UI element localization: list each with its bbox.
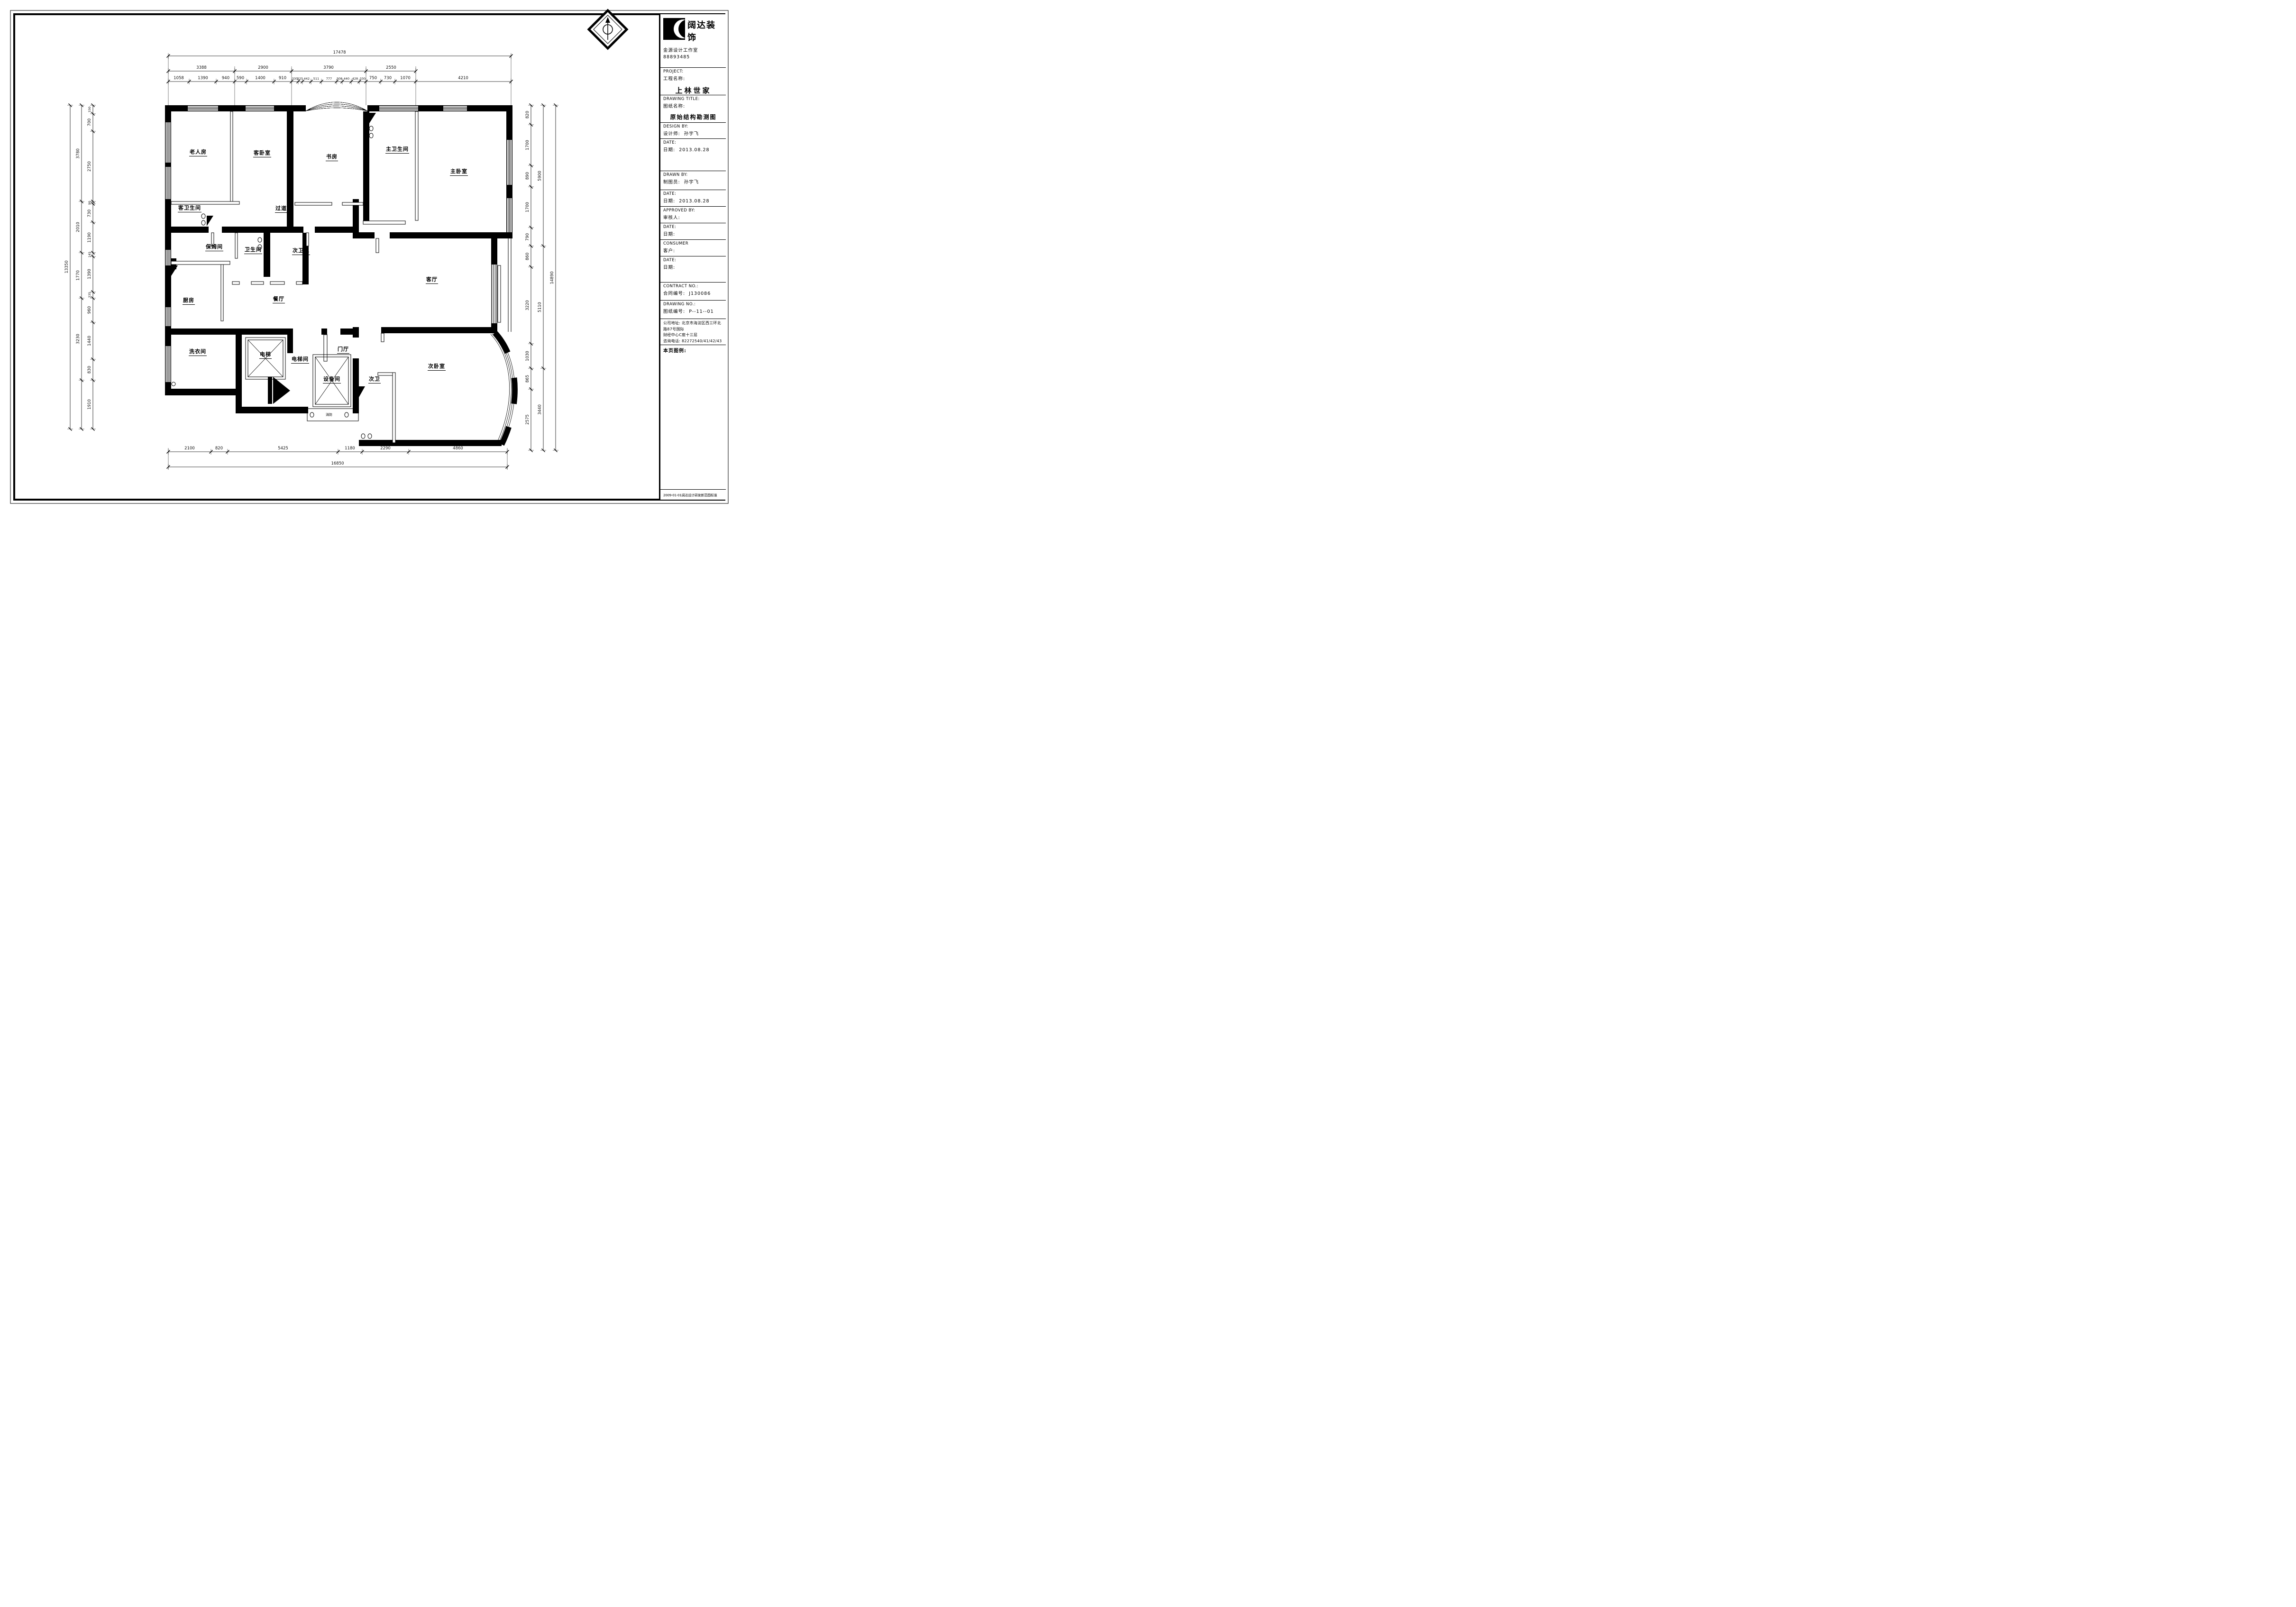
- titleblock-section-legend: 本页图例:: [660, 345, 726, 489]
- date3-label-cn: 日期:: [663, 232, 675, 237]
- approved-by-label-cn: 审核人:: [663, 215, 680, 220]
- walls: [165, 105, 512, 446]
- bay-window: [491, 333, 515, 445]
- contract-number: J130086: [689, 291, 711, 296]
- drawing-number: P--11--01: [689, 309, 713, 314]
- drawn-by-label-en: DRAWN BY:: [663, 173, 723, 177]
- titleblock-section-date4: DATE: 日期:: [660, 256, 726, 282]
- consumer-label-en: CONSUMER: [663, 241, 723, 246]
- drawing-title: 原始结构勘测图: [663, 113, 723, 121]
- date1-label-cn: 日期:: [663, 147, 675, 153]
- drawing-no-label-en: DRAWING NO.:: [663, 302, 723, 307]
- floor-plan-drawing: [0, 0, 733, 513]
- equipment-room-symbol: [313, 355, 351, 407]
- titleblock-section-consumer: CONSUMER 客户:: [660, 239, 726, 256]
- elevator-symbol: [246, 338, 285, 379]
- titleblock-section-contract: CONTRACT NO.: 合同编号:J130086: [660, 282, 726, 300]
- titleblock-section-approved-by: APPROVED BY: 审核人:: [660, 206, 726, 223]
- titleblock-section-date1: DATE: 日期:2013.08.28: [660, 138, 726, 171]
- studio-phone: 88893485: [663, 54, 723, 61]
- date4-label-en: DATE:: [663, 258, 723, 263]
- date2-value: 2013.08.28: [679, 199, 709, 204]
- drawing-no-label-cn: 图纸编号:: [663, 309, 685, 314]
- date1-value: 2013.08.28: [679, 147, 709, 153]
- dimension-lines: [67, 53, 558, 470]
- consumer-label-cn: 客户:: [663, 248, 675, 254]
- drawn-by-label-cn: 制图员:: [663, 180, 680, 185]
- titleblock-section-drawing-title: DRAWING TITLE: 图纸名称: 原始结构勘测图: [660, 95, 726, 122]
- project-name: 上林世家: [663, 85, 723, 95]
- entry-arrow-icon: [268, 377, 290, 404]
- drawing-sheet: 老人房客卧室书房主卫生间主卧室客卫生间过道保姆间卫生间次卫二厨房餐厅客厅洗衣间电…: [0, 0, 733, 513]
- titleblock-section-design-by: DESIGN BY: 设计师:孙宇飞: [660, 122, 726, 138]
- titleblock-logo: 阔达装饰 KUODA DECORRTION: [660, 14, 726, 46]
- title-block: 阔达装饰 KUODA DECORRTION 金源设计工作室 88893485 P…: [659, 14, 726, 500]
- drawing-title-label-cn: 图纸名称:: [663, 102, 723, 109]
- company-phone: 咨询电话: 82272540/41/42/43: [663, 338, 723, 345]
- footer-note: 2009-01-01阔达设计研发新范图标准: [663, 491, 723, 498]
- drafter-name: 孙宇飞: [684, 180, 699, 185]
- windows: [165, 102, 512, 383]
- titleblock-section-company: 公司地址: 北京市海淀区西三环北路87号国际 财经中心C座十三层 咨询电话: 8…: [660, 319, 726, 345]
- titleblock-section-drawn-by: DRAWN BY: 制图员:孙宇飞: [660, 171, 726, 190]
- designer-name: 孙宇飞: [684, 131, 699, 137]
- project-label-cn: 工程名称:: [663, 75, 723, 82]
- date4-label-cn: 日期:: [663, 265, 675, 270]
- titleblock-section-drawing-no: DRAWING NO.: 图纸编号:P--11--01: [660, 300, 726, 319]
- brand-name: 阔达装饰: [687, 18, 723, 43]
- design-by-label-en: DESIGN BY:: [663, 124, 723, 129]
- date1-label-en: DATE:: [663, 140, 723, 145]
- date3-label-en: DATE:: [663, 225, 723, 229]
- studio-name: 金源设计工作室: [663, 47, 723, 54]
- date2-label-en: DATE:: [663, 192, 723, 196]
- design-by-label-cn: 设计师:: [663, 131, 680, 137]
- titleblock-section-date3: DATE: 日期:: [660, 223, 726, 239]
- approved-by-label-en: APPROVED BY:: [663, 208, 723, 213]
- compass-icon: [589, 10, 627, 48]
- titleblock-footer: 2009-01-01阔达设计研发新范图标准: [660, 489, 726, 500]
- titleblock-section-date2: DATE: 日期:2013.08.28: [660, 190, 726, 206]
- legend-label: 本页图例:: [663, 347, 723, 354]
- sheet-border: [10, 10, 728, 503]
- fire-hydrant-box: [307, 409, 358, 421]
- contract-label-en: CONTRACT NO.:: [663, 284, 723, 289]
- project-label-en: PROJECT:: [663, 69, 723, 74]
- drawing-title-label-en: DRAWING TITLE:: [663, 97, 723, 101]
- company-address-1: 公司地址: 北京市海淀区西三环北路87号国际: [663, 320, 723, 332]
- titleblock-studio: 金源设计工作室 88893485: [660, 46, 726, 67]
- titleblock-section-project: PROJECT: 工程名称: 上林世家: [660, 67, 726, 95]
- kuoda-logo-icon: [663, 18, 685, 40]
- company-address-2: 财经中心C座十三层: [663, 332, 723, 338]
- arc-window: [302, 102, 372, 112]
- contract-label-cn: 合同编号:: [663, 291, 685, 296]
- date2-label-cn: 日期:: [663, 199, 675, 204]
